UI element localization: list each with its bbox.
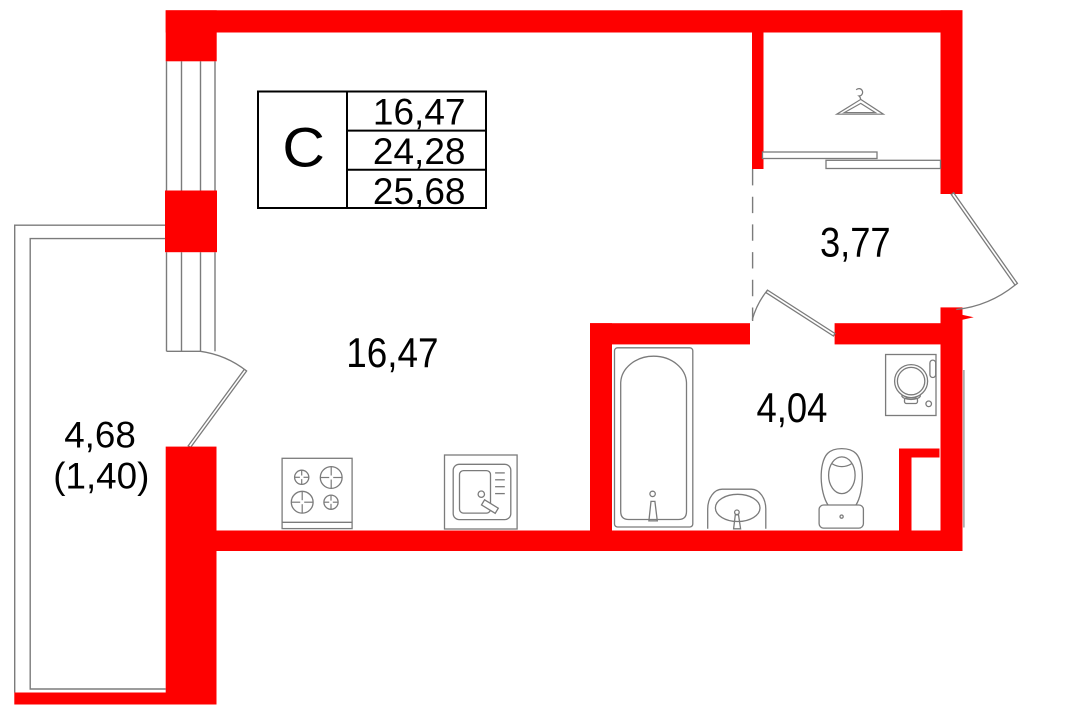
svg-text:25,68: 25,68 xyxy=(373,171,466,212)
svg-text:4,68: 4,68 xyxy=(64,414,136,455)
svg-text:24,28: 24,28 xyxy=(373,131,466,172)
svg-text:16,47: 16,47 xyxy=(373,91,466,132)
svg-text:4,04: 4,04 xyxy=(756,384,827,431)
svg-text:3,77: 3,77 xyxy=(820,218,891,265)
svg-text:(1,40): (1,40) xyxy=(53,455,149,496)
svg-text:С: С xyxy=(282,115,325,178)
svg-text:16,47: 16,47 xyxy=(346,329,438,376)
